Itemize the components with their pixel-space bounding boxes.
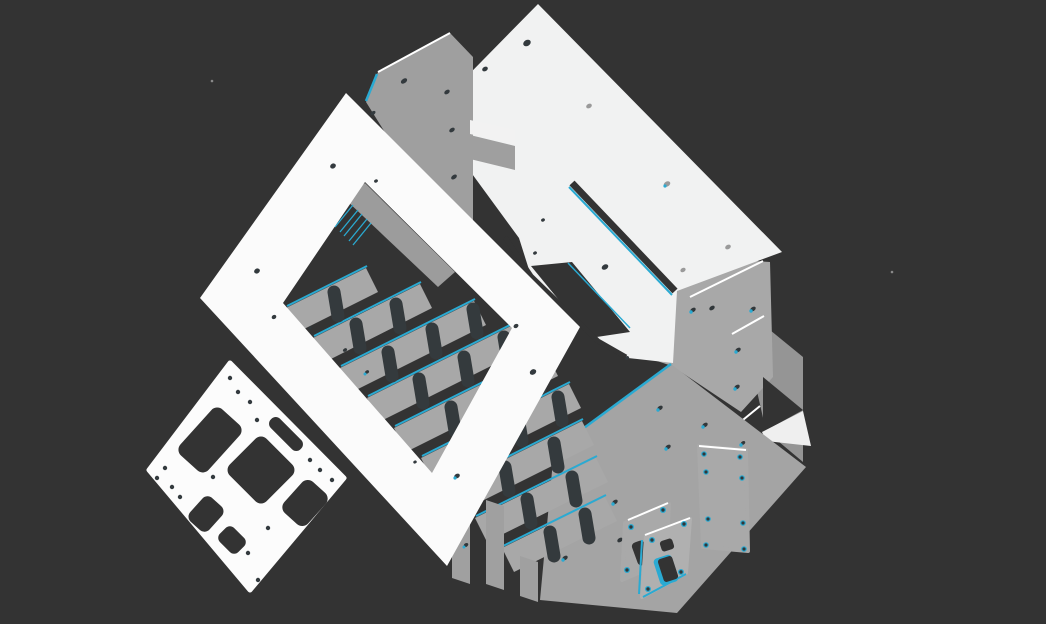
mounting-plate-hole [228, 376, 232, 380]
side-upper-hole-tick [749, 309, 752, 312]
mounting-plate-hole [170, 485, 174, 489]
mounting-plate-hole [308, 458, 312, 462]
bracket-small-rear-hole [629, 525, 632, 528]
bracket-tall-hole [741, 521, 744, 524]
side-upper-hole-tick [689, 310, 692, 313]
side-upper-hole-tick [733, 387, 736, 390]
mounting-plate-hole [246, 551, 250, 555]
mounting-plate-hole [163, 466, 167, 470]
mounting-plate-hole [211, 475, 215, 479]
bracket-tall-hole [738, 455, 741, 458]
vent-slot [550, 532, 554, 556]
bracket-small-front-hole [646, 587, 649, 590]
assembly-render [0, 0, 1046, 624]
vent-fin-hole-tick [463, 546, 466, 549]
vent-slot [396, 304, 400, 328]
front-bezel-hole-tick [453, 476, 456, 479]
side-lower-hole-tick [561, 558, 564, 561]
vent-slot [572, 477, 576, 501]
bracket-small-front-hole [679, 570, 682, 573]
dust-speck [891, 271, 894, 274]
side-lower-hole-tick [739, 443, 742, 446]
vent-slot [432, 329, 436, 353]
mounting-plate-hole [255, 418, 259, 422]
bracket-tall-hole [704, 543, 707, 546]
bracket-small-front-hole [650, 538, 653, 541]
bracket-tall-hole [740, 476, 743, 479]
mounting-plate-hole [236, 390, 240, 394]
bracket-small-rear-hole [661, 508, 664, 511]
mounting-plate-hole [330, 478, 334, 482]
bracket-tall-hole [702, 452, 705, 455]
vent-fin-hole-tick [364, 373, 367, 376]
vent-slot [505, 467, 509, 491]
mounting-plate-hole [155, 476, 159, 480]
bracket-tall-hole [706, 517, 709, 520]
vent-fin-foot [486, 500, 504, 590]
vent-slot [554, 443, 558, 467]
vent-slot [388, 352, 392, 376]
side-lower-hole-tick [611, 502, 614, 505]
vent-slot [464, 357, 468, 381]
inner-top-hatch [349, 219, 367, 241]
bracket-tall-hole [704, 470, 707, 473]
vent-slot [558, 397, 562, 421]
bracket-small-front-hole [682, 522, 685, 525]
vent-slot [585, 514, 589, 538]
vent-fin-foot [520, 556, 538, 602]
mounting-plate-hole [318, 468, 322, 472]
side-lower-hole-tick [664, 447, 667, 450]
mounting-plate-hole [248, 400, 252, 404]
mounting-plate-hole [178, 495, 182, 499]
inner-top-hatch [353, 223, 371, 245]
inner-top-hatch [344, 214, 362, 236]
bracket-tall-hole [742, 547, 745, 550]
vent-slot [451, 407, 455, 431]
bracket-small-rear-hole [625, 568, 628, 571]
top-cover-hole-tick [663, 184, 666, 187]
vent-slot [527, 499, 531, 523]
vent-slot [473, 309, 477, 333]
vent-slot [356, 324, 360, 348]
bracket-tall [699, 446, 748, 551]
vent-slot [334, 292, 338, 316]
mounting-plate-hole [256, 578, 260, 582]
dust-speck [211, 80, 214, 83]
side-upper-hole-tick [734, 350, 737, 353]
cad-viewport[interactable] [0, 0, 1046, 624]
side-lower-hole-tick [701, 425, 704, 428]
vent-slot [419, 379, 423, 403]
side-lower-hole-tick [656, 408, 659, 411]
mounting-plate-hole [266, 526, 270, 530]
